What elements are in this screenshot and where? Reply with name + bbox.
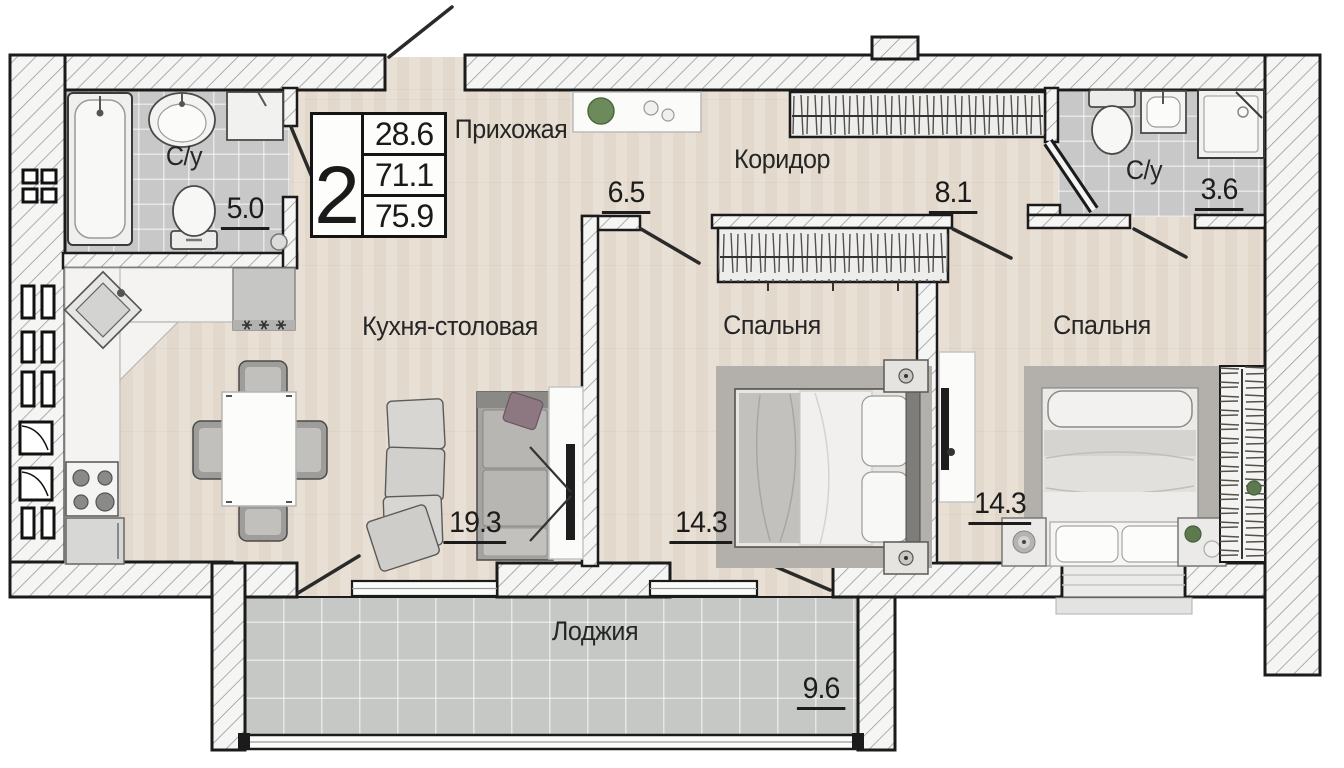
living-area-value: 28.6 [364, 115, 444, 156]
apartment-area-value: 71.1 [364, 156, 444, 197]
labels-layer: 2 28.6 71.1 75.9 Прихожая 6.5 Коридор 8.… [0, 0, 1344, 768]
title-block-areas: 28.6 71.1 75.9 [364, 115, 444, 235]
room-label-bathroom-left: С/у [166, 141, 202, 172]
room-area-bathroom-left: 5.0 [221, 192, 269, 230]
room-area-bathroom-right: 3.6 [1195, 173, 1243, 211]
room-area-bedroom-middle: 14.3 [669, 506, 732, 544]
total-area-value: 75.9 [364, 197, 444, 235]
room-area-bedroom-right: 14.3 [968, 487, 1031, 525]
room-label-corridor: Коридор [734, 144, 830, 175]
room-area-loggia: 9.6 [797, 672, 845, 710]
room-area-hallway: 6.5 [602, 176, 650, 214]
room-label-bathroom-right: С/у [1126, 155, 1162, 186]
room-area-kitchen: 19.3 [443, 506, 506, 544]
room-area-corridor: 8.1 [929, 176, 977, 214]
room-label-bedroom-middle: Спальня [723, 310, 821, 341]
room-label-hallway: Прихожая [455, 114, 568, 145]
room-label-loggia: Лоджия [552, 616, 638, 647]
title-block: 2 28.6 71.1 75.9 [310, 112, 447, 238]
floor-plan-page: { "title_block": { "rooms_count": "2", "… [0, 0, 1344, 768]
room-label-bedroom-right: Спальня [1053, 310, 1151, 341]
room-label-kitchen: Кухня-столовая [362, 311, 538, 342]
rooms-count: 2 [313, 115, 364, 235]
